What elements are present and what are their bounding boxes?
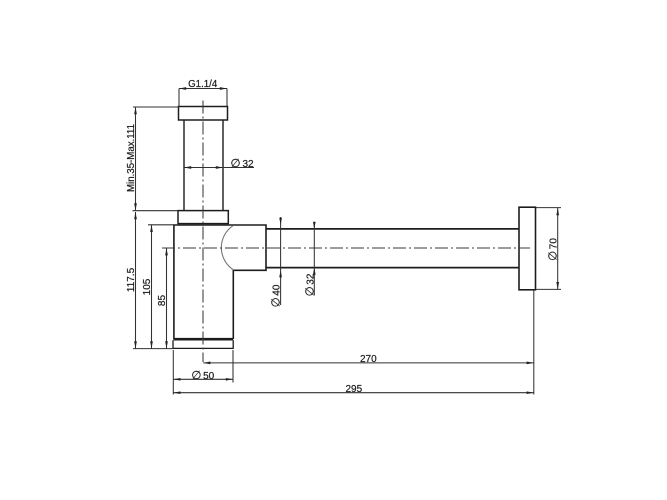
svg-text:∅32: ∅32 xyxy=(304,273,317,296)
svg-text:∅40: ∅40 xyxy=(270,284,283,307)
svg-text:∅32: ∅32 xyxy=(231,157,255,170)
svg-text:295: 295 xyxy=(345,384,362,395)
svg-text:105: 105 xyxy=(142,278,153,295)
svg-text:G1.1/4: G1.1/4 xyxy=(188,79,218,90)
svg-text:∅50: ∅50 xyxy=(191,369,214,382)
svg-text:270: 270 xyxy=(360,354,377,365)
svg-text:∅70: ∅70 xyxy=(547,238,560,261)
svg-text:85: 85 xyxy=(157,295,168,307)
svg-text:Min.35-Max.111: Min.35-Max.111 xyxy=(126,124,137,192)
svg-text:117.5: 117.5 xyxy=(126,267,137,292)
